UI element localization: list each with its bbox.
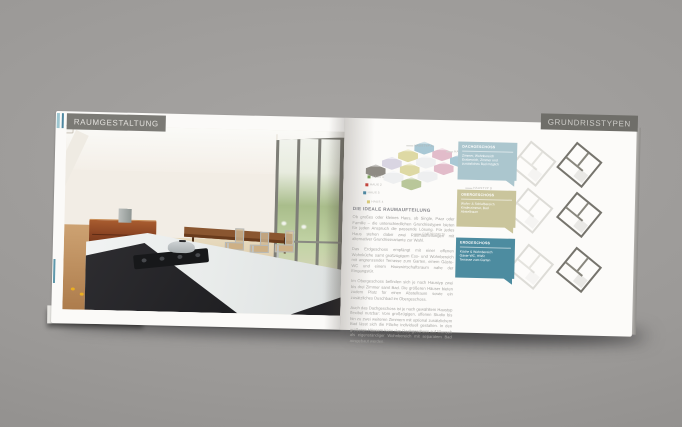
article-text-block: DIE IDEALE RAUMAUFTEILUNG Ob großes oder… [350, 206, 455, 350]
floor-info-box: DACHGESCHOSSZimmer, WohnbereichEssbereic… [457, 141, 517, 180]
article-heading: DIE IDEALE RAUMAUFTEILUNG [353, 206, 455, 213]
plan-wall [573, 169, 588, 184]
plan-wall [577, 203, 588, 217]
legend-dot [363, 191, 366, 194]
legend-dot [367, 200, 370, 203]
legend-dot [368, 175, 371, 178]
floor-info-line: Abstellraum [461, 210, 512, 216]
cantilever-chair [275, 230, 294, 258]
glass-pane [297, 139, 319, 279]
site-plan-label-text: HAUSTYP A [414, 143, 433, 147]
site-plan-label: HAUS 1 [367, 174, 384, 178]
site-plan-label: HAUS 3 [363, 190, 380, 194]
plan-wall [531, 152, 542, 166]
plan-wall [524, 214, 539, 229]
floor-info-title: ERDGESCHOSS [460, 241, 511, 249]
floor-info-box: ERDGESCHOSSKüche & WohnbereichGäste-WC, … [455, 237, 515, 278]
leader-line [446, 151, 453, 152]
article-paragraph: Im Obergeschoss befinden sich je nach Ha… [351, 278, 453, 302]
article-paragraph: Das Erdgeschoss empfängt mit einer offen… [351, 246, 454, 276]
speech-bubble-tail [503, 227, 513, 234]
plan-wall [573, 274, 588, 289]
floor-info-box: OBERGESCHOSSWohn- & SchlafbereichKinderz… [456, 189, 516, 227]
left-page-header-badge: RAUMGESTALTUNG [67, 113, 166, 131]
speech-bubble-tail [502, 278, 512, 285]
accent-stripe [57, 113, 60, 128]
garden-flowers [301, 225, 306, 229]
header-accent-stripes [57, 113, 64, 128]
accent-stripe [61, 113, 64, 128]
open-brochure: RAUMGESTALTUNG [51, 111, 637, 337]
site-plan-label: HAUSTYP A [406, 143, 433, 148]
floor-info-title: DACHGESCHOSS [462, 145, 513, 153]
plan-wall [527, 167, 542, 182]
plan-wall [573, 219, 588, 234]
site-plan-label-text: HAUS 2 [370, 182, 382, 186]
plan-wall [529, 255, 540, 269]
speech-bubble-tail [504, 180, 514, 187]
site-plan-label-text: HAUS 1 [372, 174, 384, 178]
cooking-pot [168, 241, 195, 254]
article-paragraph: Ob großes oder kleines Haus, ob Single, … [352, 214, 455, 244]
photo-backdrop: RAUMGESTALTUNG [0, 0, 682, 427]
plan-wall [577, 258, 588, 272]
site-plan-label: HAUS 2 [365, 182, 382, 186]
plan-wall [525, 270, 540, 285]
pot-lid-knob [179, 239, 186, 241]
article-paragraph: Auch das Dachgeschoss ist je nach gewähl… [350, 305, 453, 346]
site-plan-label-text: HAUS 4 [371, 199, 383, 203]
plan-wall [528, 199, 539, 213]
right-page-header-badge: GRUNDRISSTYPEN [541, 113, 638, 131]
left-page: RAUMGESTALTUNG [51, 111, 345, 330]
page-edge-accent [53, 259, 56, 283]
floor-plan-dark [556, 247, 602, 293]
right-page: GRUNDRISSTYPEN HAUSTYP AHAUSTYP BHAUSTYP… [340, 118, 637, 337]
plan-wall [577, 153, 588, 167]
legend-dot [365, 183, 368, 186]
floor-info-line: Terrasse zum Garten [460, 258, 511, 264]
floor-plan-dark [556, 142, 602, 188]
leader-line [465, 187, 472, 188]
site-plan-label-text: HAUS 3 [368, 190, 380, 194]
floor-info-title: OBERGESCHOSS [461, 193, 512, 201]
floor-plan-dark [556, 192, 602, 238]
flower-vase [119, 208, 132, 222]
site-plan-label: HAUS 4 [367, 199, 384, 203]
floor-info-line: zusätzliches Bad möglich [462, 162, 513, 168]
garden-flowers [281, 221, 286, 225]
interior-photo [62, 125, 344, 315]
leader-line [406, 145, 413, 146]
